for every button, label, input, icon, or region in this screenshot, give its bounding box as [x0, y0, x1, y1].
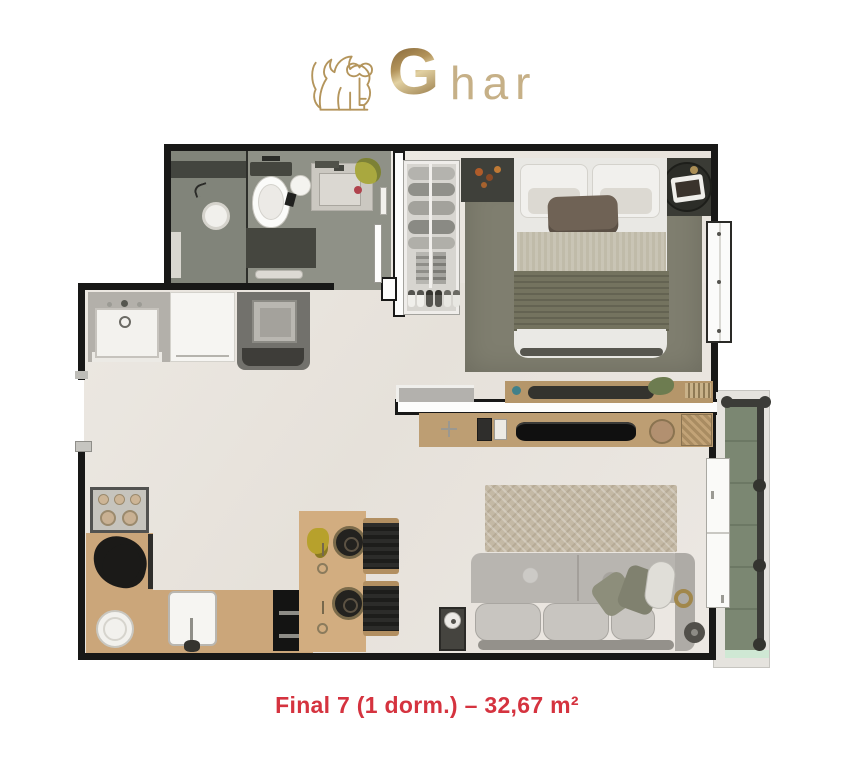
wall-top [164, 144, 718, 151]
tv-console [419, 413, 713, 447]
shower-niche [171, 232, 181, 278]
entry-door-frame-bottom [75, 441, 92, 452]
dinner-plate [333, 526, 366, 559]
lion-with-key-icon [306, 44, 388, 116]
balcony-sliding-door [706, 458, 730, 608]
balcony-edge-strip [725, 650, 769, 658]
oven-handle [279, 634, 301, 638]
cabinet-handle [176, 355, 229, 357]
dining-chair [363, 581, 399, 636]
sink-ring [119, 316, 131, 328]
shoes [444, 290, 451, 307]
throw-pillow [547, 195, 618, 237]
glass-cabinet [90, 487, 149, 533]
dining-table [299, 511, 366, 652]
window-latch [717, 280, 721, 284]
sliding-door-handle [711, 491, 714, 499]
washer-lid [252, 300, 297, 343]
plate-ring [343, 598, 358, 613]
floor-lamp [674, 589, 693, 608]
wall-upper-left [78, 283, 334, 290]
nightstand-tray [670, 174, 705, 203]
oven-handle [279, 611, 301, 615]
folded-clothes [433, 252, 446, 284]
bedroom-desk [505, 381, 713, 403]
faucet-knob [137, 302, 142, 307]
cabinet-plate [122, 510, 138, 526]
desk-tray [528, 386, 654, 399]
living-rug [485, 485, 677, 552]
basket [649, 419, 675, 444]
plate-ring [344, 537, 359, 552]
cutlery [322, 543, 324, 556]
sliding-door-seam [707, 532, 729, 534]
sliding-door-handle [721, 595, 724, 603]
balcony-railing [757, 405, 764, 648]
laundry-faucet [121, 300, 128, 307]
brand-logo: G har [300, 42, 580, 120]
red-flower [354, 186, 362, 194]
railing-post [721, 396, 733, 408]
shoes [435, 290, 442, 307]
side-table [439, 607, 466, 651]
cabinet-dish [114, 494, 125, 505]
seat-cushion [543, 603, 609, 641]
shoes [408, 290, 415, 307]
clock [444, 612, 461, 629]
washer-lid-inner [260, 308, 291, 337]
toilet-seat [258, 184, 284, 220]
desk-bowl [512, 386, 521, 395]
brand-letters-har: har [450, 60, 537, 106]
cup [317, 563, 328, 574]
faucet-knob [107, 302, 112, 307]
wall-bathroom-left [164, 144, 171, 290]
soap-tray [315, 161, 339, 168]
floor-towel [255, 270, 303, 279]
tray-book [675, 179, 701, 197]
seat-cushion [475, 603, 541, 641]
headboard-flowers [475, 168, 483, 176]
toilet-cistern [250, 162, 292, 176]
brand-letter-g: G [388, 38, 437, 104]
shoes [426, 290, 433, 307]
cabinet-plate [100, 510, 116, 526]
bed-throw [514, 271, 669, 331]
laundry-cabinet [170, 292, 235, 362]
cabinet-dish [98, 494, 109, 505]
shower-drain [202, 202, 230, 230]
window-latch [717, 232, 721, 236]
headboard-flowers [486, 174, 493, 181]
plates-stack-ring [103, 617, 127, 641]
shoes [417, 290, 424, 307]
photo-frame [494, 419, 507, 440]
wall-left-upper [78, 283, 85, 380]
cutlery [322, 601, 324, 614]
bed-blanket [517, 232, 666, 273]
cabinet-dish [130, 494, 141, 505]
kitchen-faucet-base [184, 640, 200, 652]
desk-plant [648, 377, 674, 395]
bedroom-window [706, 221, 732, 343]
railing-post [753, 479, 766, 492]
plates-stack [96, 610, 134, 648]
cup [317, 623, 328, 634]
clock-center [451, 619, 456, 624]
headboard-flowers [494, 166, 501, 173]
towel-bar [380, 187, 387, 215]
nightstand-lamp [690, 166, 698, 174]
wardrobe-rail [429, 164, 432, 288]
hall-bench [396, 385, 474, 402]
wall-right-lower [709, 603, 716, 660]
plan-caption: Final 7 (1 dorm.) – 32,67 m² [0, 692, 854, 719]
window-latch [717, 329, 721, 333]
folded-clothes [416, 252, 429, 284]
headboard-flowers [481, 182, 487, 188]
star-bar [441, 428, 457, 430]
tv [516, 422, 636, 441]
floor-plan-page: G har [0, 0, 854, 769]
railing-post [753, 638, 766, 651]
lamp-base-center [691, 629, 698, 636]
lamp-base [684, 622, 705, 643]
bath-mat [246, 228, 316, 268]
wardrobe [404, 161, 459, 314]
dining-chair [363, 518, 399, 574]
bed-foot [517, 329, 666, 350]
counter-edge [148, 534, 153, 589]
toilet-flush-buttons [262, 156, 280, 161]
washer-base [242, 348, 304, 366]
wall-bedroom-right-top [711, 144, 718, 224]
woven-box [681, 414, 712, 446]
vanity-plant [355, 158, 381, 184]
railing-post [753, 559, 766, 572]
wall-left-lower [78, 448, 85, 660]
shoes [453, 290, 460, 307]
washing-machine [237, 292, 310, 370]
sofa-base [478, 640, 674, 650]
entry-door-frame-top [75, 371, 88, 379]
wall-bottom [78, 653, 716, 660]
desk-books [685, 383, 711, 398]
sofa-seam [577, 555, 579, 601]
photo-frame [477, 418, 492, 441]
bathroom-door [374, 224, 382, 283]
wall-hall-stub [381, 277, 397, 301]
dinner-plate [332, 587, 365, 620]
star-decor [441, 421, 457, 437]
table-flowers [307, 528, 329, 554]
shower-wall-band [170, 161, 248, 178]
bed-base [520, 348, 663, 356]
